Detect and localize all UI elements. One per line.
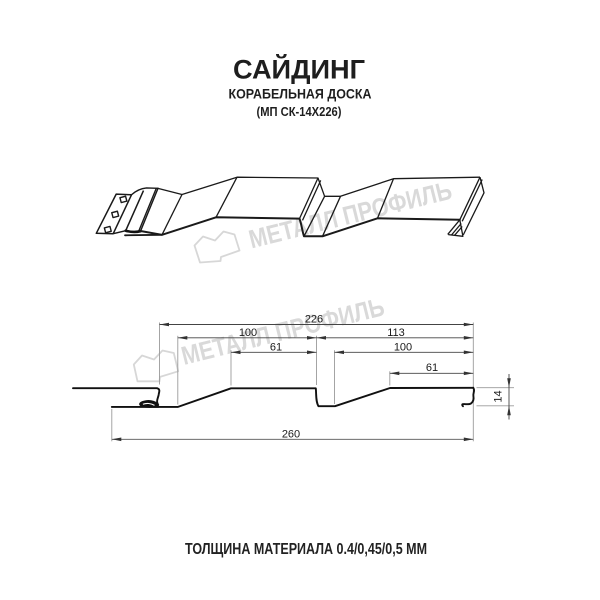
svg-text:113: 113 xyxy=(387,327,405,339)
svg-text:61: 61 xyxy=(270,341,282,353)
svg-text:260: 260 xyxy=(282,428,300,440)
svg-text:САЙДИНГ: САЙДИНГ xyxy=(233,54,365,85)
svg-text:14: 14 xyxy=(493,390,505,402)
svg-text:100: 100 xyxy=(394,341,412,353)
svg-text:61: 61 xyxy=(426,362,438,374)
svg-text:(МП СК-14Х226): (МП СК-14Х226) xyxy=(257,105,342,119)
svg-text:226: 226 xyxy=(305,314,323,326)
svg-text:ТОЛЩИНА МАТЕРИАЛА 0.4/0,45/0,5: ТОЛЩИНА МАТЕРИАЛА 0.4/0,45/0,5 ММ xyxy=(185,541,427,558)
svg-text:КОРАБЕЛЬНАЯ ДОСКА: КОРАБЕЛЬНАЯ ДОСКА xyxy=(229,86,372,102)
svg-text:100: 100 xyxy=(239,327,257,339)
